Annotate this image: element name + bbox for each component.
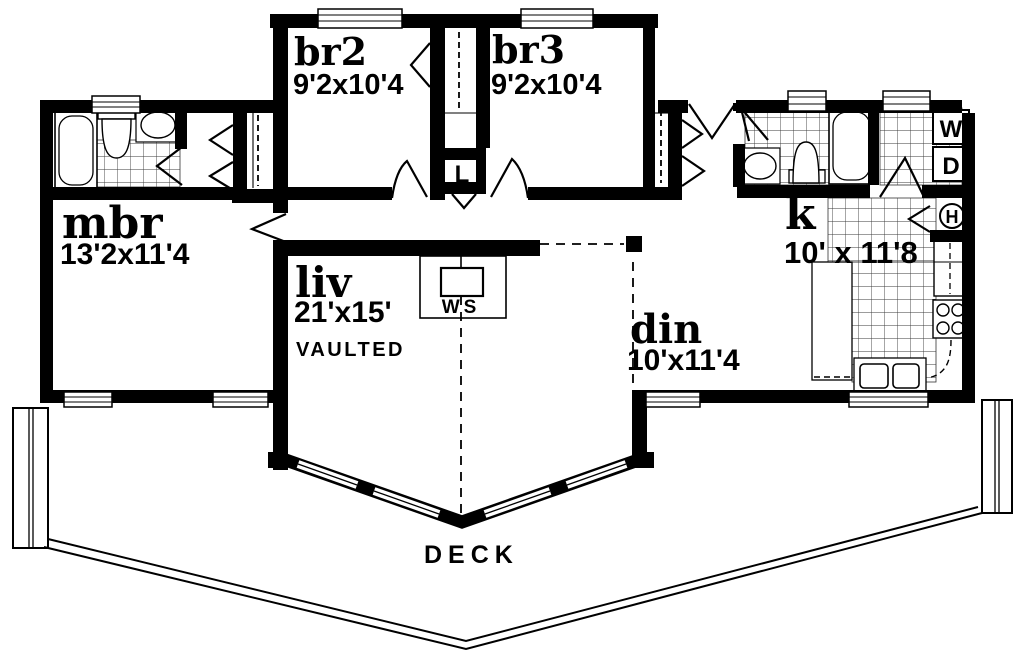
hall-closet-door-lower — [210, 162, 233, 190]
prow-wall-base — [280, 458, 644, 522]
hall-closet-door-upper — [210, 125, 233, 155]
br2-bottom-wall — [288, 187, 392, 200]
bath1-right-wall — [175, 113, 187, 149]
kitchen-counter-peninsula — [812, 262, 852, 380]
heater-closet-bottom-wall — [930, 230, 975, 242]
br3-bottom-wall — [528, 187, 682, 200]
room-label-br2: br2 — [294, 29, 367, 74]
room-dims-br2: 9'2x10'4 — [293, 69, 404, 101]
west-band-lower — [273, 243, 288, 470]
hall-closet-wall — [233, 108, 247, 192]
prow-window-mullions — [298, 464, 626, 514]
back-entry-door-swing — [689, 104, 735, 138]
room-label-br3: br3 — [492, 27, 565, 72]
dryer-label: D — [942, 153, 959, 180]
window — [213, 392, 268, 407]
toilet-bowl — [793, 142, 819, 183]
liv-top-wall — [273, 240, 540, 256]
vestibule-west-wall — [668, 103, 682, 200]
window — [788, 91, 826, 111]
linen-closet-label: L — [455, 161, 470, 188]
water-heater-label: H — [946, 207, 959, 227]
wood-stove-label: WS — [442, 297, 481, 318]
window — [64, 392, 112, 407]
west-band-upper — [273, 14, 288, 213]
window — [92, 96, 140, 113]
br3-left-wall — [476, 28, 490, 148]
din-post — [626, 236, 642, 252]
prow-window-wall — [280, 458, 644, 522]
bath2-laundry-divider — [868, 108, 879, 185]
deck — [13, 400, 1012, 649]
window — [521, 9, 593, 28]
linen-bifold-door — [452, 194, 476, 208]
br2-door-swing — [392, 161, 427, 198]
vestibule-closet-door-lower — [682, 156, 704, 186]
window — [849, 392, 928, 407]
bathtub-basin — [833, 112, 870, 180]
window — [646, 392, 700, 407]
bathtub-basin — [59, 116, 93, 185]
deck-label: DECK — [424, 541, 519, 569]
washer-label: W — [940, 116, 963, 143]
toilet-bowl — [102, 119, 131, 158]
sink-basin-left — [860, 364, 888, 388]
deck-edge-rail — [44, 507, 982, 649]
room-label-kitchen: k — [785, 189, 817, 240]
sink-basin — [141, 112, 175, 138]
east-exterior-wall — [962, 113, 975, 403]
br3-east-wall — [643, 14, 655, 200]
floor-plan-svg: mbr 13'2x11'4 br2 9'2x10'4 br3 9'2x10'4 … — [0, 0, 1028, 664]
room-dims-din: 10'x11'4 — [627, 344, 740, 377]
room-dims-br3: 9'2x10'4 — [491, 69, 602, 101]
sink-basin-right — [893, 364, 919, 388]
wood-stove-box — [441, 268, 483, 296]
br2-closet-door — [411, 43, 430, 87]
window — [318, 9, 402, 28]
prow-window-glass — [298, 464, 626, 514]
sink-basin — [744, 153, 776, 179]
heater-closet-top-wall — [922, 185, 962, 198]
deck-stairs-right — [982, 400, 1012, 513]
br3-door-swing — [491, 159, 528, 198]
deck-stairs-left — [13, 408, 48, 548]
room-dims-kitchen: 10' x 11'8 — [784, 235, 918, 270]
room-dims-mbr: 13'2x11'4 — [60, 238, 190, 271]
br2-right-wall — [430, 28, 445, 200]
mbr-door-swing — [252, 214, 286, 242]
west-exterior-wall — [40, 100, 53, 403]
floor-plan-page: mbr 13'2x11'4 br2 9'2x10'4 br3 9'2x10'4 … — [0, 0, 1028, 664]
room-note-vaulted: VAULTED — [296, 339, 405, 361]
bath2-west-stub-bottom — [733, 144, 745, 187]
window — [883, 91, 930, 111]
room-dims-liv: 21'x15' — [294, 296, 392, 329]
vestibule-closet-door-upper — [682, 120, 702, 148]
